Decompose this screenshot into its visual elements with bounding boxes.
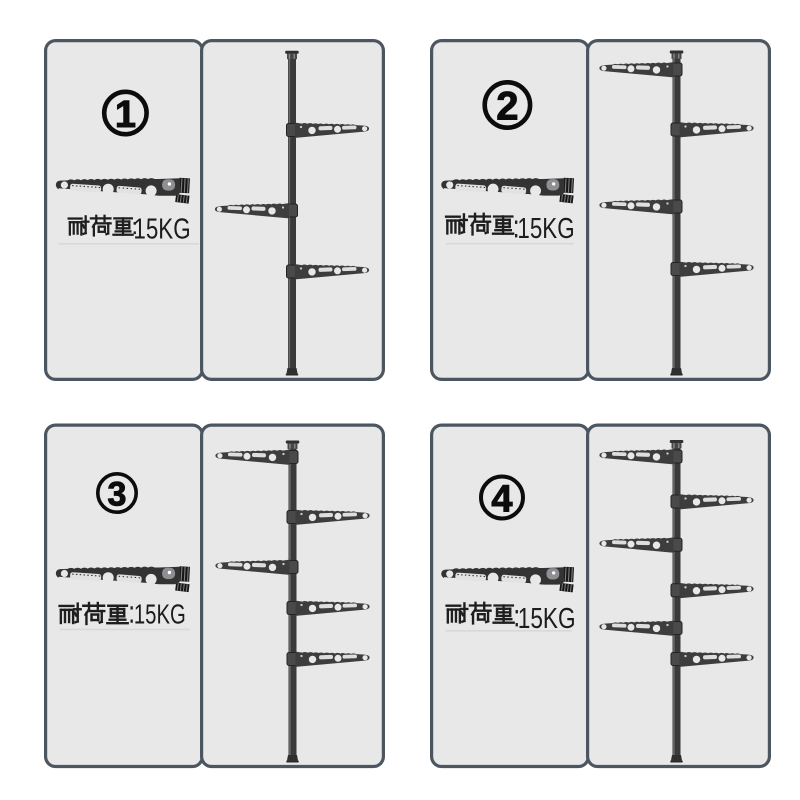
svg-text:15KG: 15KG [134,599,186,630]
svg-text:15KG: 15KG [517,214,574,245]
svg-text:15KG: 15KG [133,214,190,245]
svg-text:1: 1 [115,94,136,136]
svg-text:3: 3 [108,475,127,513]
svg-text:4: 4 [491,478,512,520]
svg-text:2: 2 [496,85,518,129]
